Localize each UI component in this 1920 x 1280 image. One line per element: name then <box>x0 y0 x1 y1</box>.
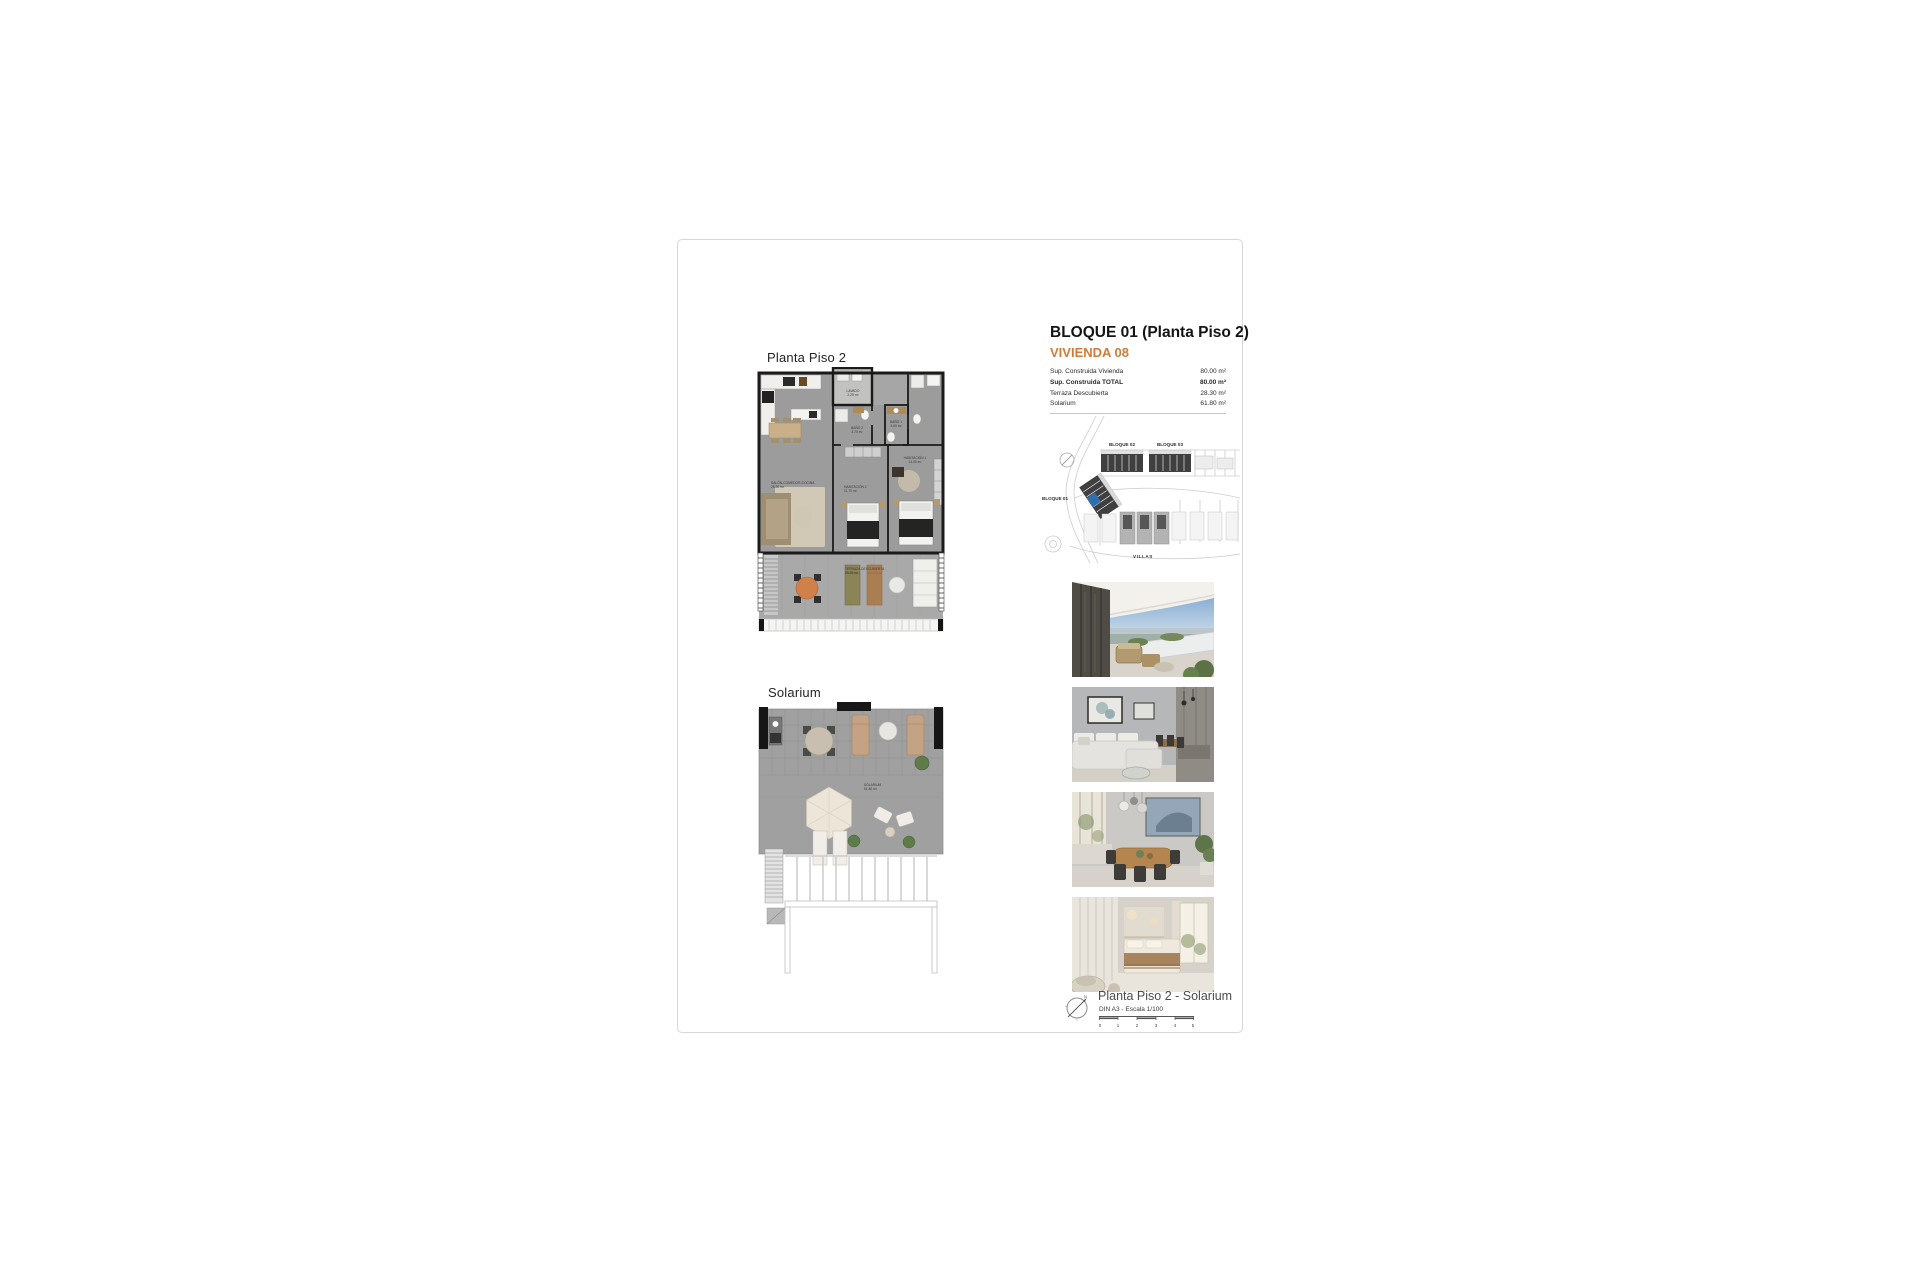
surface-label: Sup. Construida Vivienda <box>1050 367 1123 378</box>
scale-tick: 4 <box>1174 1023 1177 1028</box>
scale-tick: 3 <box>1155 1023 1158 1028</box>
room-area-terraza: 28.30 m² <box>845 571 859 575</box>
scale-bar: 0 1 2 3 4 5 <box>1099 1016 1195 1030</box>
siteplan-label-villas: VILLAS <box>1133 554 1153 559</box>
surface-value: 80.00 m² <box>1200 367 1226 378</box>
surface-table: Sup. Construida Vivienda 80.00 m² Sup. C… <box>1050 367 1226 414</box>
room-area-habitacion1: 14.00 m² <box>908 460 922 464</box>
photo-living-room <box>1072 687 1214 782</box>
siteplan-label-bloque02: BLOQUE 02 <box>1109 442 1135 447</box>
room-area-salon: 25.90 m² <box>771 485 785 489</box>
scale-tick: 0 <box>1099 1023 1102 1028</box>
room-area-lavado: 2.25 m² <box>847 393 859 397</box>
compass-north-label: N <box>1084 995 1087 1000</box>
photo-bedroom <box>1072 897 1214 992</box>
scale-tick: 2 <box>1136 1023 1139 1028</box>
surface-value: 28.30 m² <box>1200 389 1226 400</box>
vivienda-subtitle: VIVIENDA 08 <box>1050 345 1129 360</box>
plan1-title: Planta Piso 2 <box>767 350 846 365</box>
scale-tick: 5 <box>1192 1023 1195 1028</box>
site-plan: BLOQUE 02 BLOQUE 03 BLOQUE 01 VILLAS <box>1040 414 1242 564</box>
compass-icon: N <box>1062 992 1092 1022</box>
surface-label: Sup. Construida TOTAL <box>1050 378 1123 389</box>
siteplan-bloque01-building <box>1079 473 1122 519</box>
table-row: Solarium 61.80 m² <box>1050 399 1226 410</box>
siteplan-bloque03-building <box>1149 450 1191 472</box>
siteplan-label-bloque03: BLOQUE 03 <box>1157 442 1183 447</box>
screenshot-canvas: Planta Piso 2 <box>0 0 1920 1280</box>
room-area-bano1: 4.60 m² <box>890 424 902 428</box>
surface-label: Terraza Descubierta <box>1050 389 1108 400</box>
photo-dining-area <box>1072 792 1214 887</box>
footer-plan-title: Planta Piso 2 - Solarium <box>1098 989 1232 1003</box>
table-row: Sup. Construida TOTAL 80.00 m² <box>1050 378 1226 389</box>
page-title: BLOQUE 01 (Planta Piso 2) <box>1050 324 1249 342</box>
siteplan-bloque02-building <box>1101 450 1143 472</box>
scale-tick: 1 <box>1117 1023 1120 1028</box>
room-area-bano2: 3.70 m² <box>851 430 863 434</box>
compass-icon <box>1060 453 1074 467</box>
floor-plan-solarium: SOLARIUM 61.80 m² <box>757 701 945 976</box>
plan2-title: Solarium <box>768 685 821 700</box>
photo-terrace <box>1072 582 1214 677</box>
room-area-habitacion2: 11.70 m² <box>844 489 858 493</box>
table-row: Sup. Construida Vivienda 80.00 m² <box>1050 367 1226 378</box>
floor-plan-piso2: LAVADO 2.25 m² BAÑO 2 3.70 m² BAÑO 1 4.6… <box>757 367 945 633</box>
siteplan-villas <box>1084 512 1238 544</box>
room-area-solarium: 61.80 m² <box>864 787 878 791</box>
table-row: Terraza Descubierta 28.30 m² <box>1050 389 1226 400</box>
surface-value: 80.00 m² <box>1200 378 1226 389</box>
document-page: Planta Piso 2 <box>677 239 1243 1033</box>
siteplan-label-bloque01: BLOQUE 01 <box>1042 496 1068 501</box>
footer-scale-note: DIN A3 - Escala 1/100 <box>1099 1006 1163 1013</box>
surface-label: Solarium <box>1050 399 1076 410</box>
surface-value: 61.80 m² <box>1200 399 1226 410</box>
